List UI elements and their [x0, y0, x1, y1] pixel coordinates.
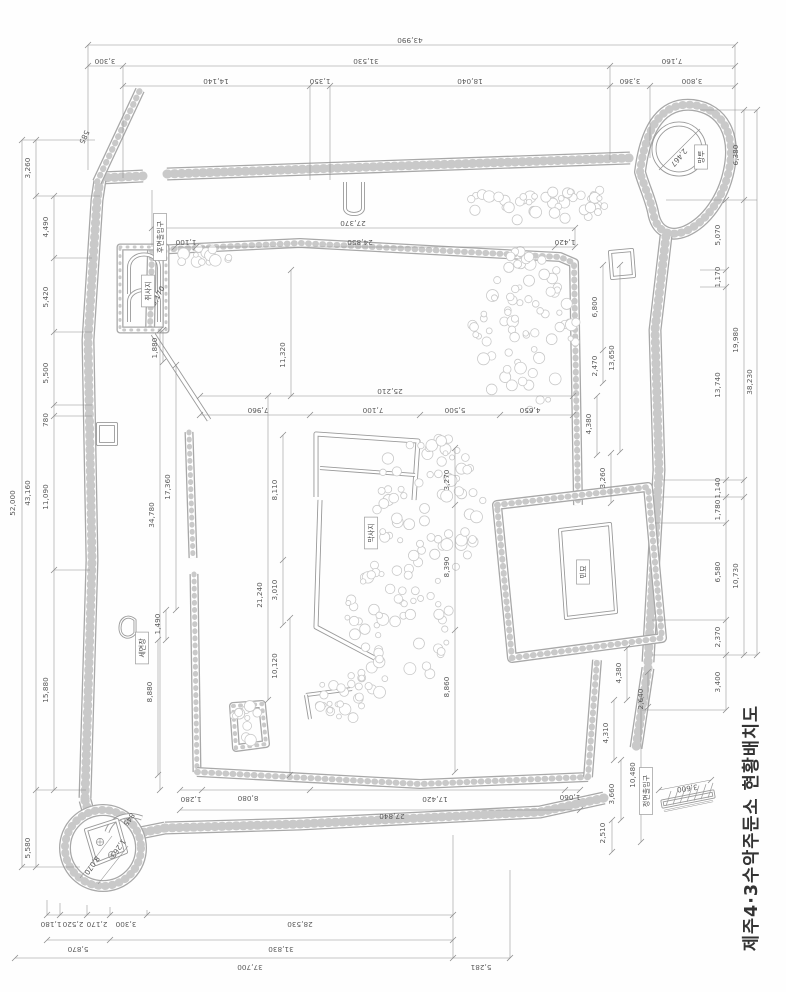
rubble-stone — [512, 215, 522, 225]
dimension-label: 5,870 — [67, 945, 88, 954]
rubble-stone — [415, 479, 423, 487]
rubble-stone — [405, 609, 415, 619]
rubble-stone — [404, 663, 416, 675]
wall-core — [152, 243, 578, 505]
dimension-label: 8,860 — [442, 676, 451, 697]
rubble-stone — [555, 322, 564, 331]
dimension-label: 43,160 — [23, 480, 32, 506]
dimension-label: 3,300 — [94, 57, 115, 66]
rubble-stone — [510, 332, 520, 342]
feature-label: 취사지 — [144, 281, 153, 300]
rubble-stone — [450, 455, 455, 460]
rubble-stone — [382, 676, 388, 682]
rubble-stone — [585, 202, 595, 212]
dimension-label: 2,510 — [598, 822, 607, 843]
dimension-label: 52,000 — [8, 490, 17, 516]
rubble-stone — [504, 202, 515, 213]
rubble-stone — [243, 721, 252, 730]
rubble-stone — [384, 486, 391, 493]
rubble-stone — [520, 194, 527, 201]
rubble-stone — [376, 655, 384, 663]
rubble-stone — [558, 195, 564, 201]
rubble-stone — [382, 453, 393, 464]
dimension-label: 43,990 — [397, 36, 423, 45]
rubble-stone — [526, 199, 532, 205]
dimension-label: 27,840 — [379, 812, 405, 821]
rubble-stone — [194, 252, 199, 257]
feature-label: 망루 — [697, 150, 706, 163]
dimension-label: 7,960 — [247, 406, 268, 415]
dimension-label: 1,060 — [559, 793, 580, 802]
rubble-stone — [532, 193, 538, 199]
dimension-label: 1,780 — [713, 499, 722, 520]
feature-label: 세면장 — [138, 638, 147, 658]
feature-label-group: 민묘 — [577, 560, 590, 584]
rubble-stone — [225, 254, 231, 260]
rubble-stone — [444, 606, 453, 615]
rubble-stone — [561, 298, 572, 309]
rubble-stone — [594, 209, 601, 216]
dimension-label: 7,160 — [661, 57, 682, 66]
rubble-stone — [420, 503, 430, 513]
rubble-stone — [355, 683, 362, 690]
rubble-stone — [404, 571, 412, 579]
rubble-stone — [511, 315, 518, 322]
rubble-stone — [422, 662, 430, 670]
rubble-stone — [385, 584, 395, 594]
dimension-label: 3,010 — [270, 579, 279, 600]
rubble-stone — [244, 701, 255, 712]
dimension-label: 4,310 — [601, 722, 610, 743]
rubble-stone — [360, 579, 365, 584]
dimension-label: 31,830 — [268, 945, 294, 954]
rubble-stone — [442, 626, 448, 632]
rubble-stone — [337, 714, 342, 719]
rubble-stone — [345, 615, 350, 620]
rubble-stone — [374, 686, 386, 698]
rubble-stone — [506, 380, 517, 391]
rubble-stone — [418, 442, 424, 448]
rubble-stone — [437, 457, 446, 466]
feature-label: 막사지 — [367, 523, 376, 542]
dimension-label: 1,180 — [40, 920, 61, 929]
dimension-label: 780 — [41, 413, 50, 427]
rubble-stone — [482, 337, 491, 346]
rubble-stone — [538, 256, 546, 264]
rubble-stone — [486, 328, 492, 334]
drawing-title: 제주4·3수악주둔소 현황배치도 — [742, 705, 762, 951]
rubble-stone — [511, 285, 518, 292]
dimension-label: 17,360 — [163, 474, 172, 500]
feature-label-group: 정면출입구 — [640, 768, 653, 815]
rubble-stone — [523, 275, 534, 286]
dimension-label: 7,100 — [362, 406, 383, 415]
dimension-label: 1,420 — [554, 238, 575, 247]
rubble-stone — [348, 680, 355, 687]
dimension-label: 3,400 — [713, 671, 722, 692]
dimension-label: 11,090 — [41, 484, 50, 510]
rubble-stone — [503, 365, 511, 373]
rubble-stone — [408, 550, 419, 561]
rubble-stone — [401, 493, 407, 499]
dimension-label: 10,120 — [270, 653, 279, 679]
rubble-stone — [469, 489, 477, 497]
rubble-stone — [367, 571, 375, 579]
rubble-stone — [523, 331, 529, 337]
rubble-stone — [441, 539, 453, 551]
dimension-label: 8,390 — [442, 556, 451, 577]
dimension-label: 1,490 — [153, 613, 162, 634]
rubble-stone — [437, 648, 445, 656]
wall-pebble-texture — [97, 90, 140, 182]
dimension-label: 8,110 — [270, 479, 279, 500]
rubble-stone — [441, 490, 453, 502]
rubble-stone — [427, 592, 434, 599]
structure-core — [345, 182, 363, 214]
drawing-page: 43,9903,30031,5307,16014,1401,35018,0403… — [0, 0, 786, 992]
rubble-stone — [434, 609, 444, 619]
rubble-stone — [315, 702, 325, 712]
rubble-stone — [320, 691, 328, 699]
rubble-stone — [549, 208, 560, 219]
dimension-label: 5,070 — [713, 224, 722, 245]
rubble-stone — [557, 310, 562, 315]
rubble-stone — [481, 311, 487, 317]
rubble-stone — [567, 189, 573, 195]
rubble-stone — [515, 362, 527, 374]
rubble-stone — [349, 629, 360, 640]
dimension-label: 13,740 — [713, 372, 722, 398]
dimension-label: 5,500 — [444, 406, 465, 415]
rubble-stone — [494, 192, 504, 202]
rubble-stone — [435, 578, 440, 583]
feature-label-group: 망루 — [695, 145, 708, 169]
rubble-stone — [337, 684, 345, 692]
dimension-label: 8,070 — [82, 854, 102, 877]
rubble-stone — [436, 436, 446, 446]
rubble-stone — [491, 295, 497, 301]
rubble-stone — [411, 587, 419, 595]
feature-label-group: 세면장 — [136, 632, 149, 664]
dimension-label: 3,660 — [607, 783, 616, 804]
rubble-stone — [505, 349, 512, 356]
dimension-label: 3,800 — [681, 77, 702, 86]
rubble-stone — [379, 499, 389, 509]
rubble-stone — [414, 638, 425, 649]
dimension-label: 34,780 — [147, 502, 156, 528]
dimension-label: 3,260 — [598, 467, 607, 488]
rubble-stone — [443, 451, 448, 456]
dimension-label: 1,140 — [713, 477, 722, 498]
rubble-stone — [480, 497, 486, 503]
rubble-stone — [473, 332, 479, 338]
rubble-stone — [546, 334, 557, 345]
dimension-label: 10,730 — [731, 563, 740, 589]
rubble-stone — [478, 353, 490, 365]
rubble-stone — [528, 368, 537, 377]
rubble-stone — [549, 373, 561, 385]
rubble-stone — [430, 549, 440, 559]
rubble-stone — [518, 377, 527, 386]
rubble-stone — [198, 259, 205, 266]
rubble-stone — [534, 352, 545, 363]
dimension-label: 3,600 — [676, 783, 698, 795]
rubble-stone — [546, 287, 555, 296]
rubble-stone — [327, 707, 333, 713]
rubble-stone — [468, 536, 476, 544]
rubble-stone — [548, 187, 558, 197]
dimension-label: 27,370 — [340, 219, 366, 228]
rubble-stone — [376, 632, 381, 637]
feature-label-group: 후면출입구 — [154, 214, 167, 261]
rubble-stone — [444, 530, 452, 538]
rubble-stone — [392, 467, 401, 476]
structure-core — [98, 424, 116, 444]
rubble-stone — [539, 269, 550, 280]
rubble-stone — [536, 396, 544, 404]
dimension-label: 11,320 — [278, 342, 287, 368]
rubble-stone — [178, 258, 186, 266]
rubble-stone — [355, 693, 363, 701]
rubble-stone — [506, 293, 514, 301]
feature-label-group: 막사지 — [365, 517, 378, 549]
dimension-label: 2,640 — [636, 688, 645, 709]
rubble-stone — [378, 487, 385, 494]
rubble-stone — [531, 329, 539, 337]
rubble-stone — [392, 513, 403, 524]
dimension-label: 2,170 — [86, 920, 107, 929]
dimension-label: 2,520 — [62, 920, 83, 929]
rubble-stone — [358, 703, 364, 709]
dimension-label: 1,880 — [150, 337, 159, 358]
dimension-label: 4,380 — [614, 662, 623, 683]
dimension-label: 1,170 — [713, 266, 722, 287]
dimension-label: 8,880 — [145, 681, 154, 702]
dimension-label: 5,580 — [23, 837, 32, 858]
rubble-stone — [390, 616, 401, 627]
site-plan-svg: 43,9903,30031,5307,16014,1401,35018,0403… — [0, 0, 786, 992]
feature-label: 정면출입구 — [642, 774, 651, 807]
rubble-stone — [463, 551, 471, 559]
structure-outline — [345, 182, 363, 214]
dimension-label: 2,370 — [713, 626, 722, 647]
rubble-stone — [361, 643, 370, 652]
dimension-label: 1,280 — [180, 795, 201, 804]
dimension-label: 14,140 — [203, 77, 229, 86]
rubble-stone — [370, 561, 378, 569]
rubble-stone — [505, 309, 511, 315]
rubble-stone — [209, 254, 221, 266]
dimension-label: 38,230 — [745, 369, 754, 395]
rubble-stone — [398, 538, 403, 543]
dimension-label: 15,880 — [41, 677, 50, 703]
dimension-label: 10,480 — [628, 762, 637, 788]
rubble-stone — [525, 296, 532, 303]
rubble-stone — [444, 640, 449, 645]
dimension-label: 17,420 — [422, 795, 448, 804]
wall-pebble-texture — [152, 243, 578, 505]
rubble-stone — [398, 486, 404, 492]
rubble-stone — [577, 191, 586, 200]
rubble-stone — [359, 675, 365, 681]
rubble-stone — [427, 533, 435, 541]
rubble-stone — [471, 511, 483, 523]
feature-label: 후면출입구 — [156, 220, 165, 253]
rubble-stones-layer — [178, 186, 608, 746]
rubble-stone — [517, 300, 523, 306]
rubble-stone — [348, 713, 358, 723]
rubble-stone — [398, 587, 406, 595]
rubble-stone — [494, 277, 501, 284]
structure-core — [153, 334, 209, 420]
dimension-label: 8,080 — [237, 794, 258, 803]
dimension-label: 3,300 — [115, 920, 136, 929]
wall-outer-edge — [152, 243, 578, 505]
rubble-stone — [404, 519, 415, 530]
rubble-stone — [418, 595, 424, 601]
dimension-label: 4,380 — [584, 413, 593, 434]
rubble-stone — [568, 336, 573, 341]
structure-outline — [610, 250, 634, 278]
rubble-stone — [553, 267, 560, 274]
feature-label-group: 취사지 — [142, 275, 155, 307]
dimension-label: 5,281 — [471, 963, 492, 972]
rubble-stone — [601, 203, 608, 210]
rubble-stone — [348, 672, 354, 678]
dimension-label: 3,270 — [442, 469, 451, 490]
dimension-line — [656, 787, 662, 793]
dimension-label: 21,240 — [255, 582, 264, 608]
rubble-stone — [546, 397, 551, 402]
dimension-label: 585 — [77, 129, 91, 145]
rubble-stone — [531, 346, 537, 352]
rubble-stone — [537, 308, 544, 315]
dimension-label: 6,380 — [731, 144, 740, 165]
rubble-stone — [380, 469, 387, 476]
rubble-stone — [506, 252, 515, 261]
dimension-label: 5,420 — [41, 286, 50, 307]
dimension-label: 13,650 — [607, 345, 616, 371]
rubble-stone — [454, 487, 463, 496]
rubble-stone — [380, 529, 386, 535]
rubble-stone — [394, 595, 403, 604]
rubble-stone — [486, 384, 497, 395]
rubble-stone — [365, 683, 372, 690]
dimension-label: 3,360 — [619, 77, 640, 86]
rubble-stone — [530, 206, 542, 218]
rubble-stone — [245, 715, 250, 720]
rubble-stone — [468, 195, 475, 202]
rubble-stone — [434, 535, 442, 543]
rubble-stone — [427, 471, 433, 477]
rubble-stone — [411, 598, 417, 604]
rubble-stone — [572, 318, 580, 326]
rubble-stone — [504, 262, 514, 272]
dimension-label: 31,530 — [353, 57, 379, 66]
rubble-stone — [560, 213, 570, 223]
dimension-label: 5,500 — [41, 362, 50, 383]
rubble-stone — [483, 191, 494, 202]
dimension-label: 24,850 — [347, 238, 373, 247]
rubble-stone — [245, 734, 256, 745]
rubble-stone — [379, 572, 384, 577]
structure-outline — [98, 424, 116, 444]
dimension-label: 6,800 — [590, 296, 599, 317]
dimension-label: 28,530 — [287, 920, 313, 929]
rubble-stone — [416, 540, 423, 547]
rubble-stone — [597, 196, 602, 201]
rubble-stone — [470, 323, 479, 332]
rubble-stone — [463, 465, 472, 474]
dimension-label: 4,650 — [519, 406, 540, 415]
dimension-label: 1,350 — [309, 77, 330, 86]
rubble-stone — [392, 566, 402, 576]
rubble-stone — [337, 701, 344, 708]
dimension-label: 1,100 — [175, 238, 196, 247]
dimension-label: 25,210 — [377, 387, 403, 396]
rubble-stone — [376, 612, 383, 619]
dimension-label: 4,490 — [41, 216, 50, 237]
rubble-stone — [452, 563, 459, 570]
rubble-stone — [514, 260, 522, 268]
rubble-stone — [524, 252, 533, 261]
dimension-label: 37,700 — [237, 963, 263, 972]
rubble-stone — [462, 454, 470, 462]
feature-label: 민묘 — [579, 565, 588, 578]
rubble-stone — [389, 493, 399, 503]
rubble-stone — [419, 516, 429, 526]
dimension-label: 3,260 — [23, 157, 32, 178]
dimension-label: 19,980 — [731, 327, 740, 353]
rubble-stone — [346, 600, 351, 605]
dimension-label: 18,040 — [457, 77, 483, 86]
rubble-stone — [532, 301, 539, 308]
dimension-label: 2,470 — [590, 355, 599, 376]
rubble-stone — [235, 709, 243, 717]
wall-pebble-texture — [100, 176, 143, 178]
rubble-stone — [436, 601, 441, 606]
rubble-stone — [349, 616, 358, 625]
dimension-line — [708, 777, 714, 783]
rubble-stone — [320, 682, 325, 687]
rubble-stone — [208, 245, 217, 254]
dimension-label: 6,580 — [713, 561, 722, 582]
rubble-stone — [461, 528, 470, 537]
rubble-stone — [470, 205, 480, 215]
rubble-stone — [327, 701, 332, 706]
rubble-stone — [360, 624, 370, 634]
rubble-stone — [406, 441, 414, 449]
